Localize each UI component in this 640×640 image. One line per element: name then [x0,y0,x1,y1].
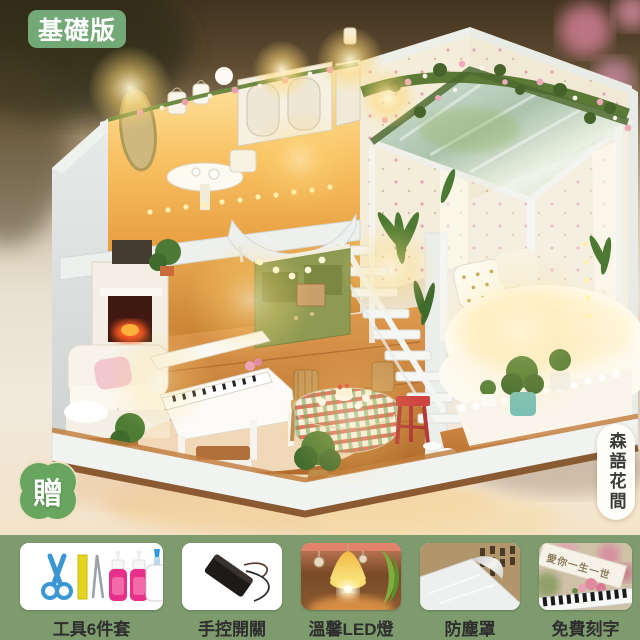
led-lamp-photo [301,543,401,610]
product-image[interactable]: 基礎版 贈 森語花間 [0,0,640,640]
gift-badge-label: 贈 [16,459,80,523]
feature-tool-kit: 工具6件套 [20,543,163,640]
battery-switch-photo [182,543,282,610]
sandpaper-strip-icon [78,555,87,599]
dust-cover-photo [420,543,520,610]
feature-led: 溫馨LED燈 [301,543,401,640]
feature-label: 工具6件套 [53,615,130,640]
feature-dust-cover: 防塵罩 [420,543,520,640]
version-badge: 基礎版 [28,10,126,48]
feature-label: 溫馨LED燈 [309,615,394,640]
feature-engraving: 愛你一生一世 [539,543,632,640]
engraving-photo: 愛你一生一世 [539,543,632,610]
gift-badge: 贈 [16,459,80,523]
feature-switch: 手控開關 [182,543,282,640]
dollhouse-photo [0,0,640,535]
tool-kit-photo [20,543,163,610]
dollhouse-scene [0,0,640,535]
feature-label: 防塵罩 [445,615,496,640]
feature-strip: 工具6件套 手控開關 [0,535,640,640]
feature-label: 手控開關 [198,615,266,640]
feature-label: 免費刻字 [552,615,620,640]
product-name-pill: 森語花間 [597,424,635,520]
